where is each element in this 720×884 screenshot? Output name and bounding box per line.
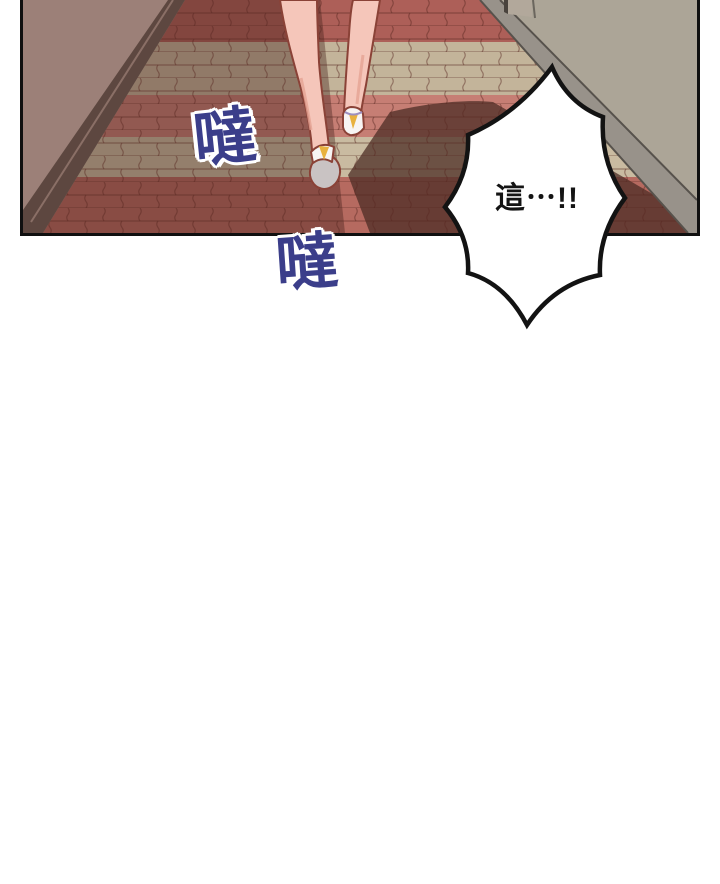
- comic-page: 這⋯!! 噠 噠: [0, 0, 720, 884]
- sfx-footstep-2: 噠: [260, 224, 355, 304]
- sfx-footstep-1: 噠: [176, 97, 273, 180]
- door: [508, 0, 532, 17]
- speech-bubble-text: 這⋯!!: [495, 181, 579, 215]
- speech-bubble: 這⋯!!: [430, 52, 670, 342]
- door-frame: [504, 0, 508, 14]
- left-shoe: [343, 107, 364, 135]
